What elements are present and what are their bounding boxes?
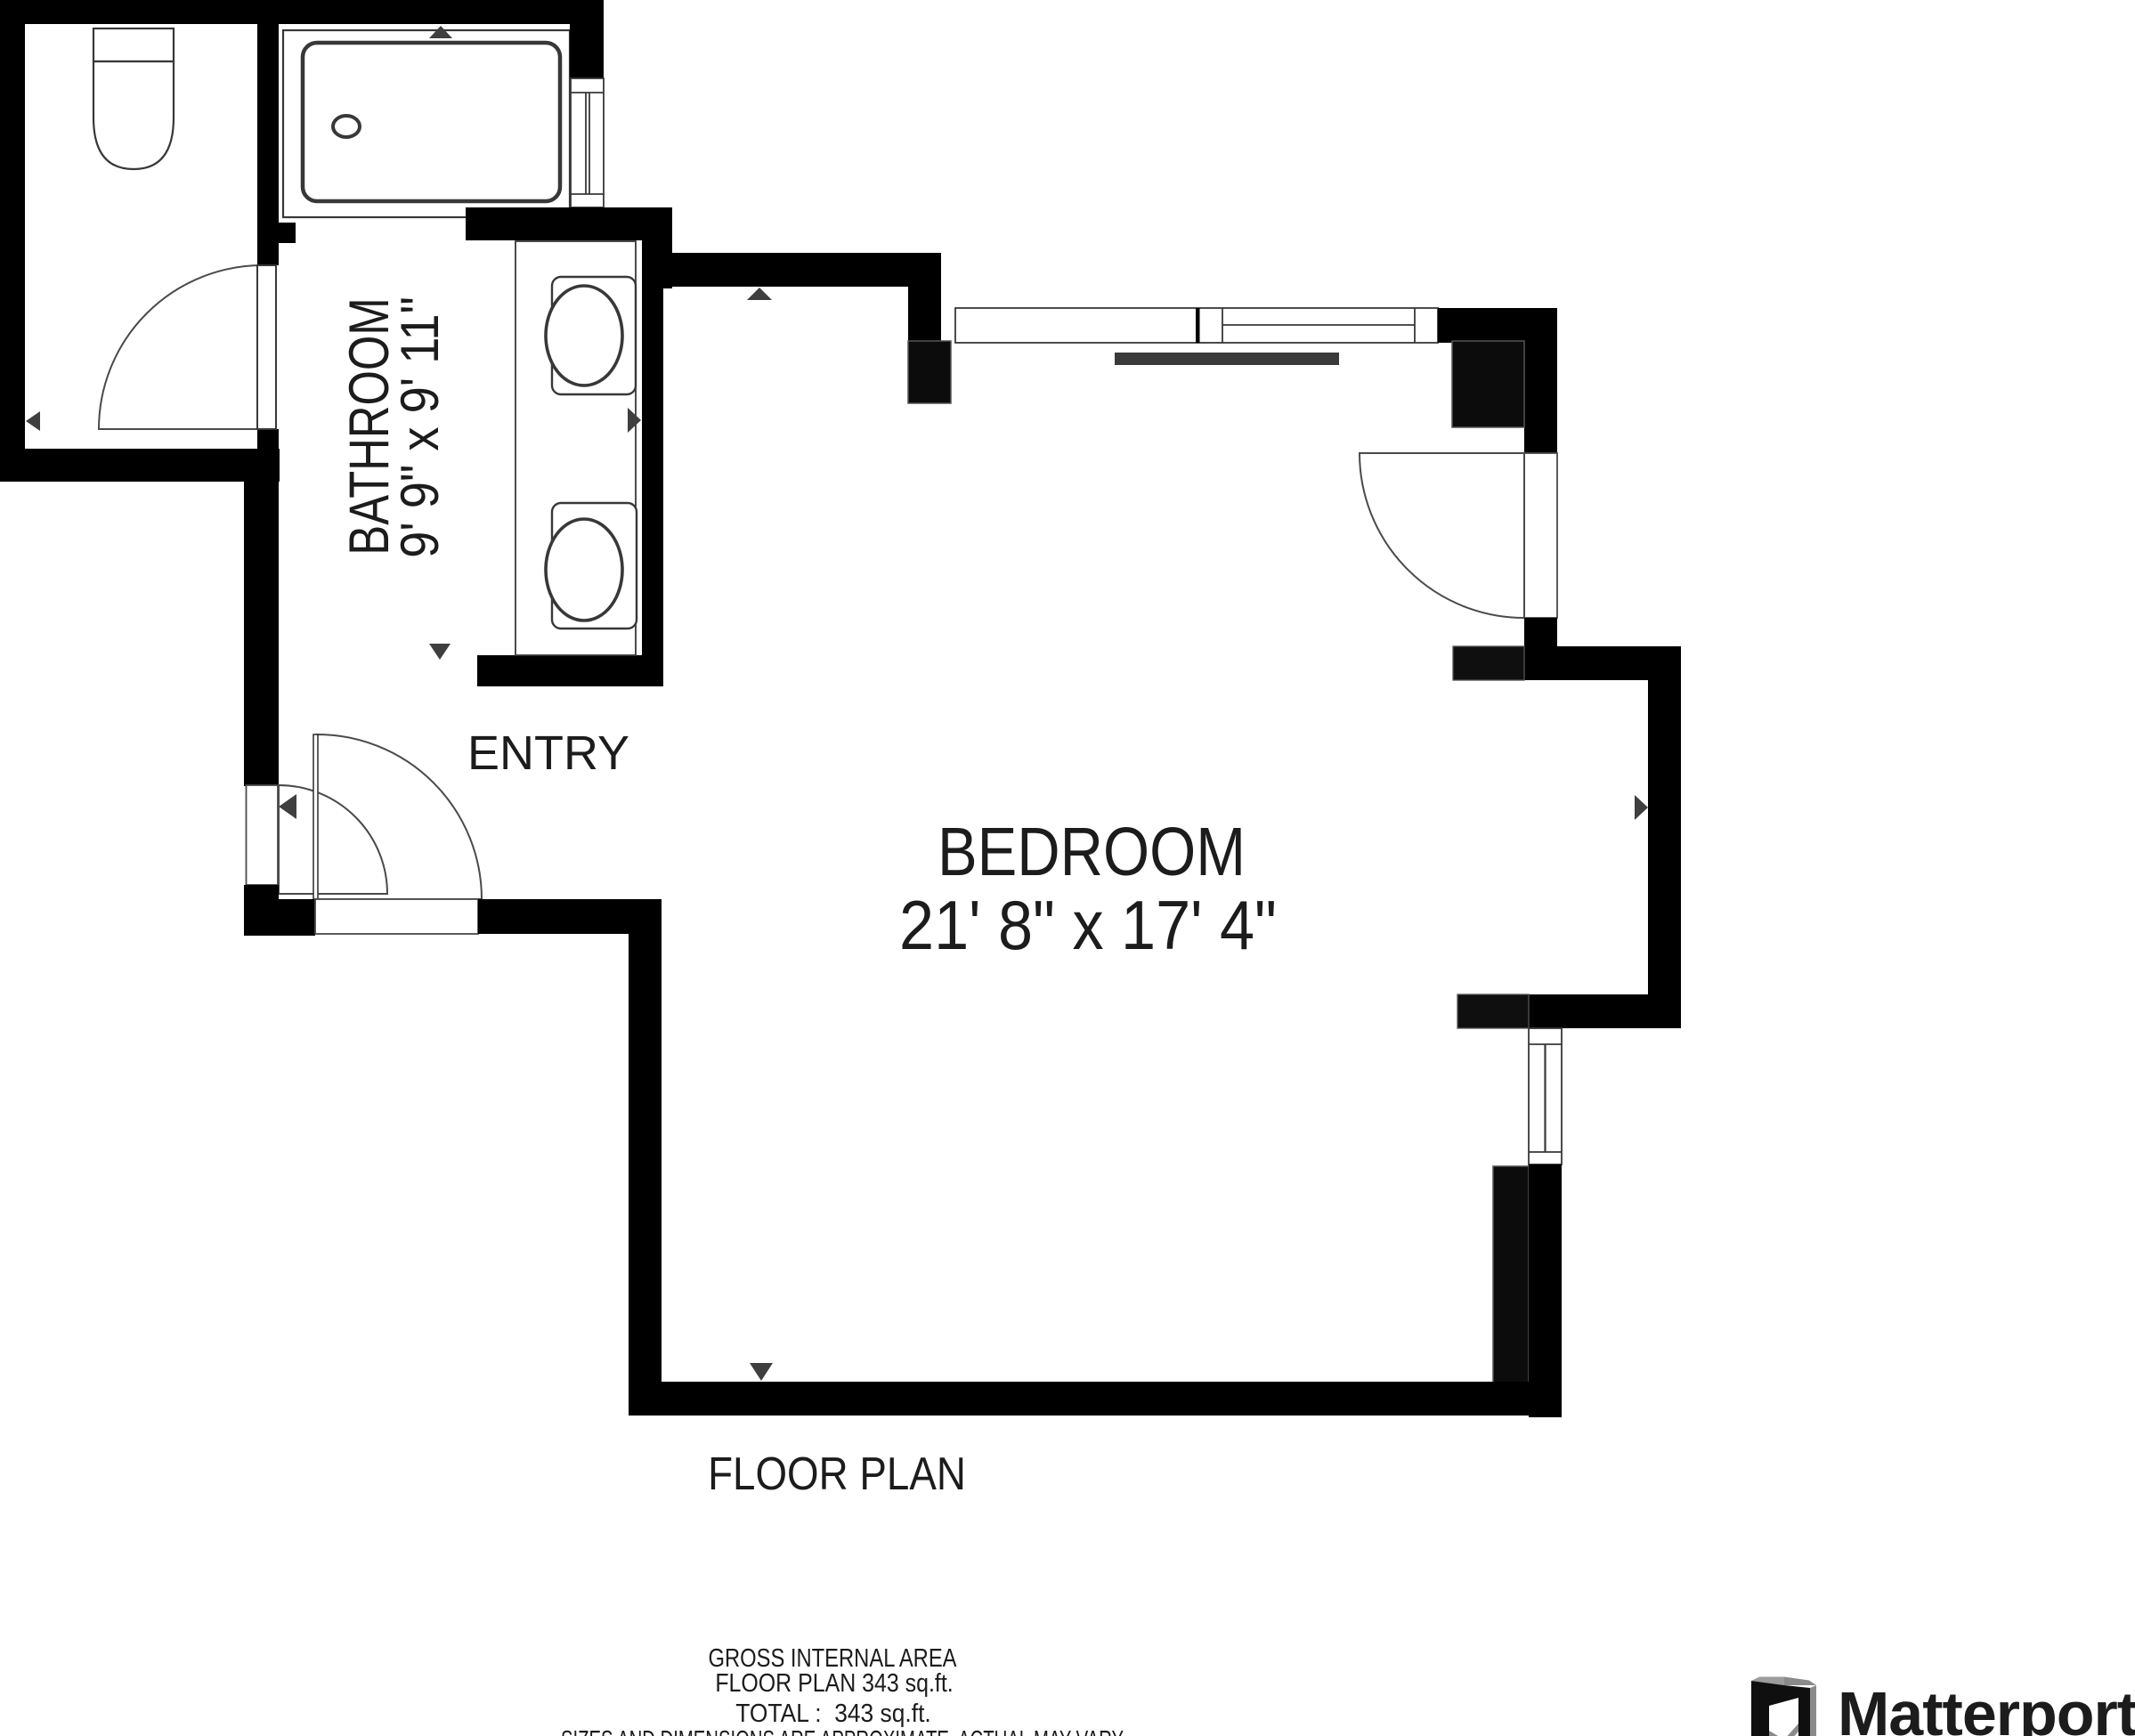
svg-text:21' 8" x 17' 4": 21' 8" x 17' 4" [899, 887, 1277, 964]
svg-text:SIZES AND DIMENSIONS ARE APPRO: SIZES AND DIMENSIONS ARE APPROXIMATE, AC… [561, 1726, 1124, 1736]
svg-text:Matterport: Matterport [1838, 1679, 2135, 1736]
svg-text:ENTRY: ENTRY [467, 726, 629, 780]
svg-text:BEDROOM: BEDROOM [938, 815, 1246, 890]
svg-text:9' 9" x 9' 11": 9' 9" x 9' 11" [391, 296, 451, 558]
svg-text:FLOOR PLAN 343 sq.ft.: FLOOR PLAN 343 sq.ft. [715, 1668, 953, 1697]
svg-text:TOTAL : 343 sq.ft.: TOTAL : 343 sq.ft. [735, 1699, 930, 1727]
svg-text:FLOOR PLAN: FLOOR PLAN [708, 1448, 966, 1499]
